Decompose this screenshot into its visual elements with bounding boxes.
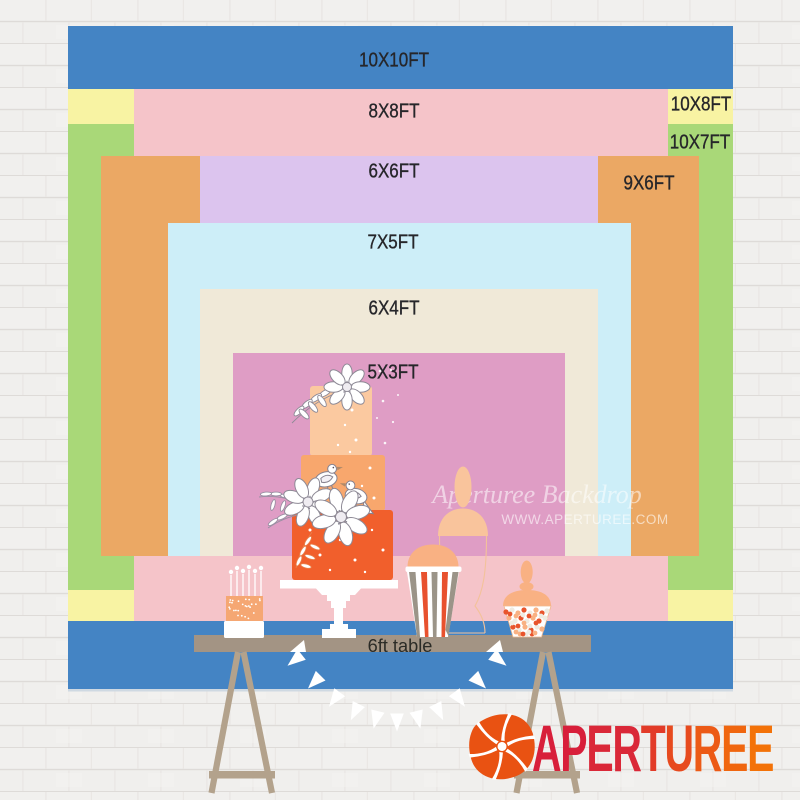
svg-text:WWW.APERTUREE.COM: WWW.APERTUREE.COM — [501, 512, 668, 527]
svg-text:APERTUREE: APERTUREE — [532, 711, 773, 786]
svg-text:6ft table: 6ft table — [368, 636, 433, 656]
